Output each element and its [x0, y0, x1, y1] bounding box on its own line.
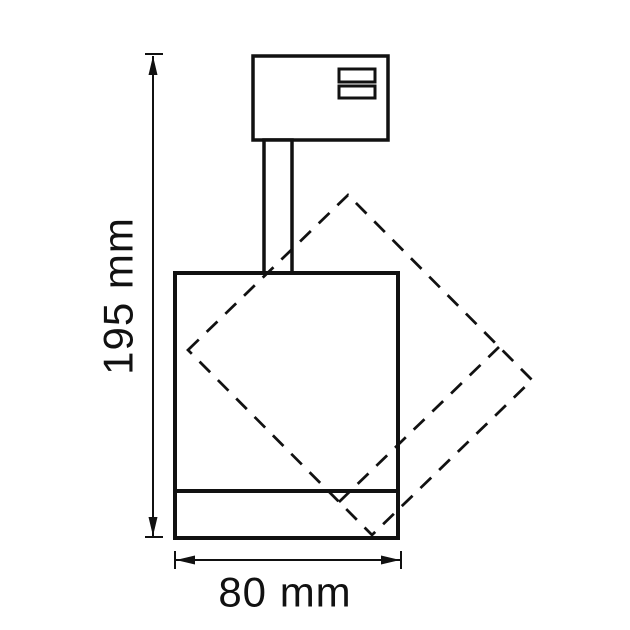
adapter-slot-bottom [339, 86, 375, 98]
height-dim-arrow-up [149, 56, 158, 75]
width-dimension: 80 mm [175, 551, 401, 616]
track-spotlight-dimension-diagram: 195 mm 80 mm [0, 0, 630, 630]
width-dim-arrow-right [381, 556, 400, 565]
width-dim-arrow-left [176, 556, 195, 565]
lamp-body [175, 273, 398, 538]
dimension-diagram-page: 195 mm 80 mm [0, 0, 630, 630]
height-dim-arrow-down [149, 517, 158, 536]
width-dim-label: 80 mm [218, 569, 351, 616]
height-dimension: 195 mm [95, 54, 164, 537]
fixture-drawing [175, 56, 398, 538]
adapter-slot-top [339, 69, 375, 82]
height-dim-label: 195 mm [95, 217, 142, 375]
